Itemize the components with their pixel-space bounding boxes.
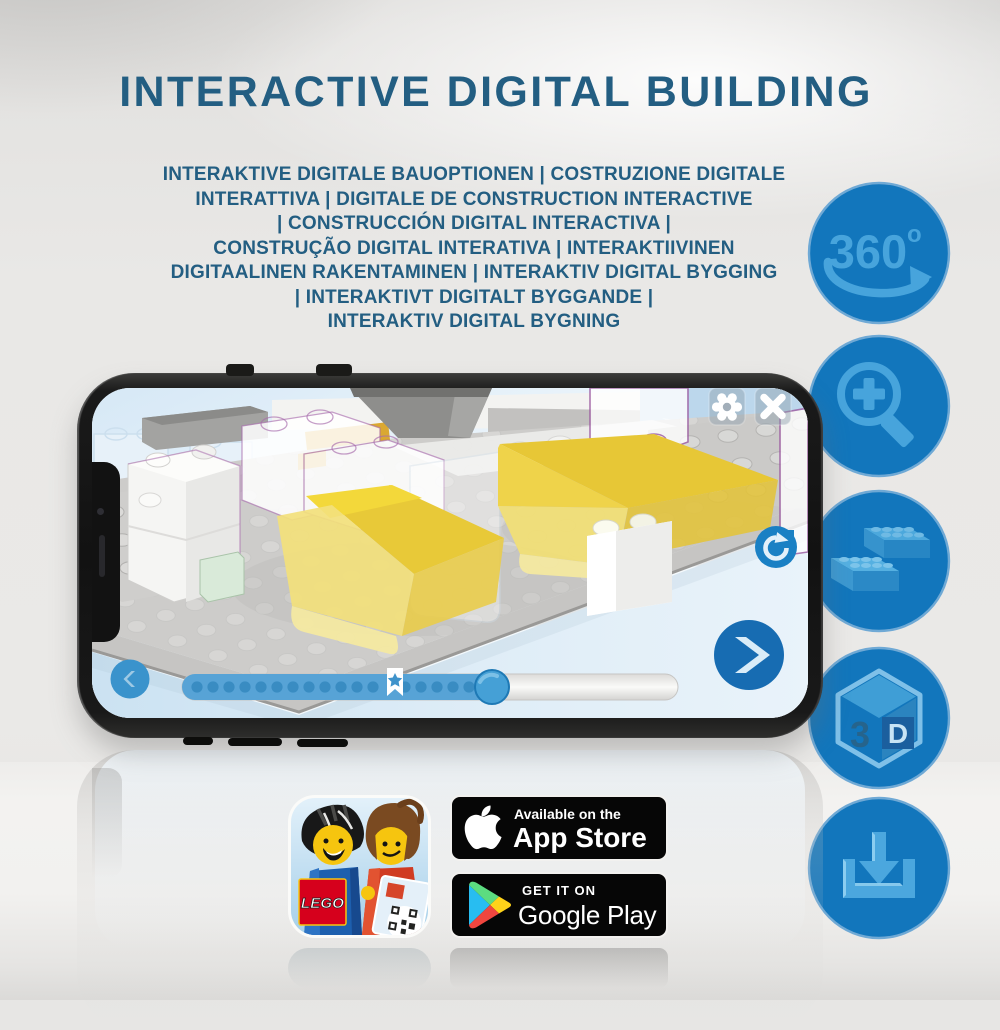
svg-text:Available on the: Available on the bbox=[514, 806, 621, 822]
svg-text:Google Play: Google Play bbox=[518, 900, 657, 930]
svg-text:3: 3 bbox=[850, 714, 870, 755]
svg-text:GET IT ON: GET IT ON bbox=[522, 883, 596, 898]
svg-text:360: 360 bbox=[829, 225, 907, 278]
svg-text:App Store: App Store bbox=[513, 822, 647, 853]
svg-text:LEGO: LEGO bbox=[301, 895, 344, 912]
svg-text:o: o bbox=[907, 221, 922, 248]
svg-text:D: D bbox=[888, 718, 908, 749]
